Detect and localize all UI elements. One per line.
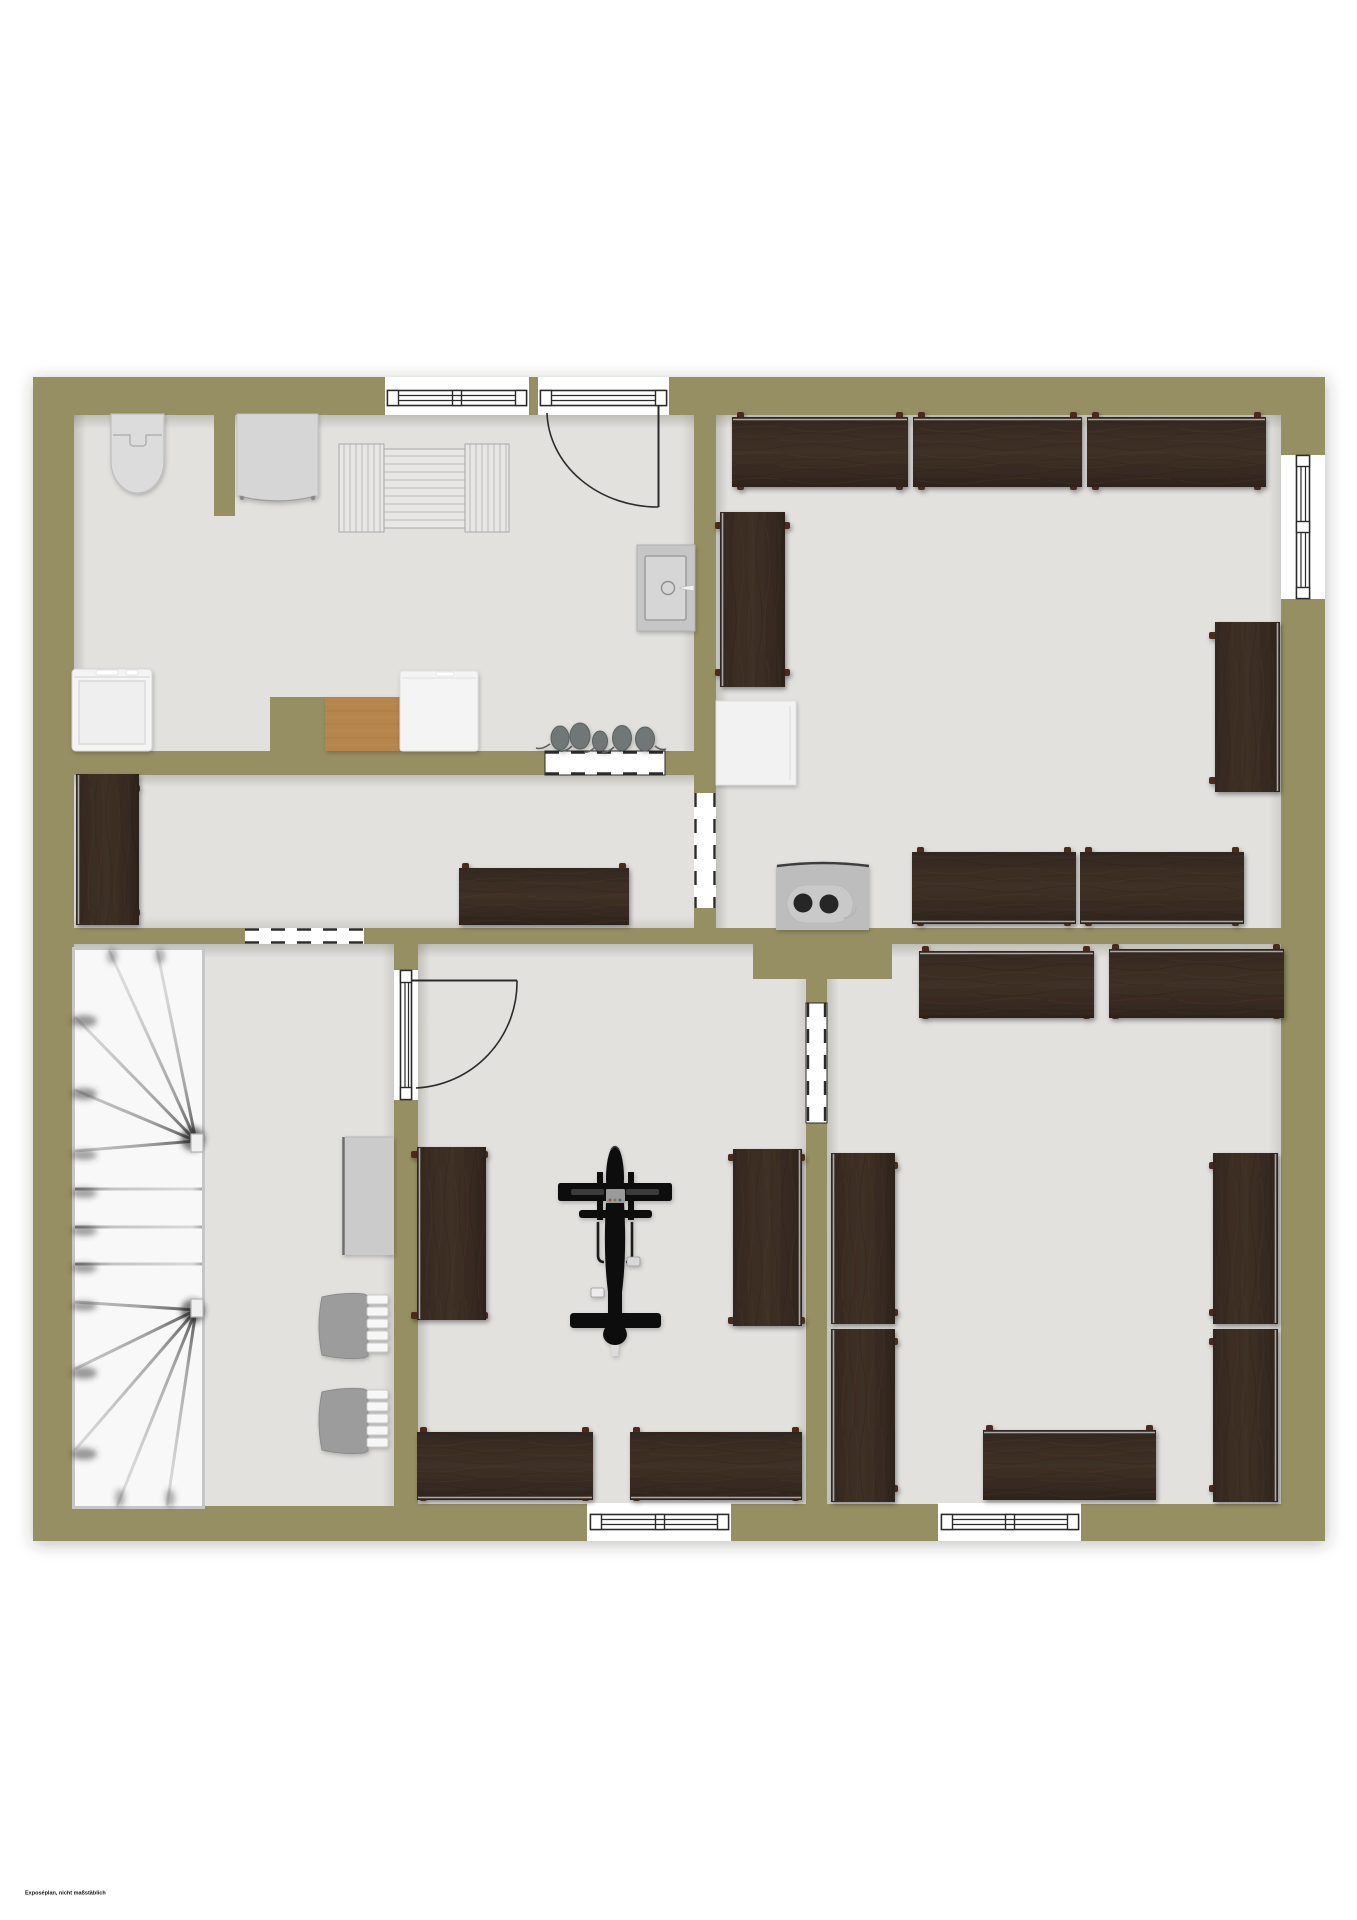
svg-text:Exposéplan, nicht maßstäblich: Exposéplan, nicht maßstäblich (25, 1891, 106, 1897)
